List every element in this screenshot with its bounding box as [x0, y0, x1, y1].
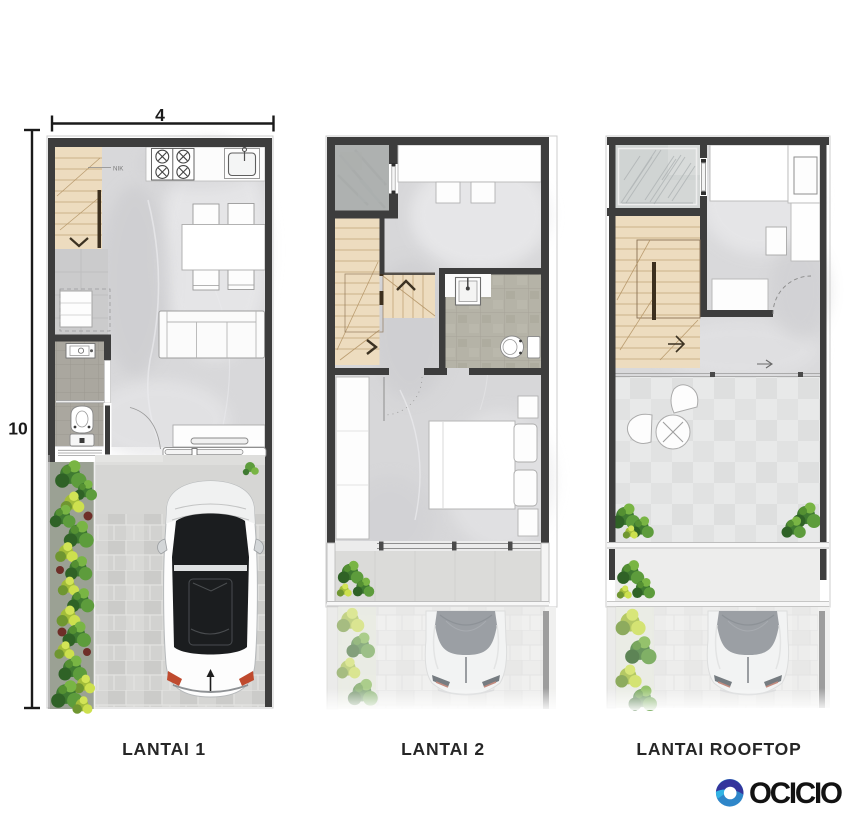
svg-text:NIK: NIK — [113, 166, 124, 173]
svg-text:4: 4 — [155, 105, 165, 125]
svg-text:10: 10 — [8, 419, 28, 439]
svg-text:LANTAI ROOFTOP: LANTAI ROOFTOP — [636, 739, 801, 759]
svg-text:OCICIO: OCICIO — [749, 777, 842, 810]
svg-text:LANTAI 1: LANTAI 1 — [122, 739, 206, 759]
svg-text:LANTAI 2: LANTAI 2 — [401, 739, 485, 759]
